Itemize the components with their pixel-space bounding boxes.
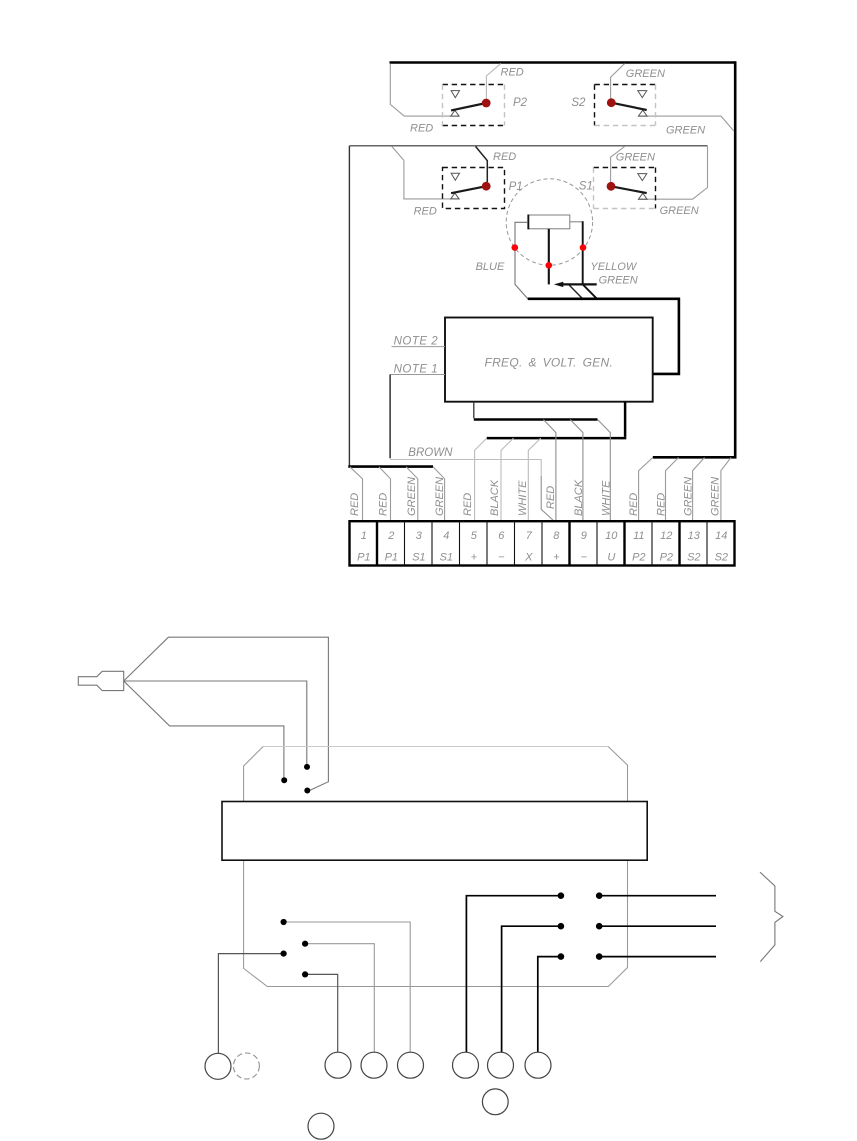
svg-text:GREEN: GREEN	[710, 477, 722, 516]
svg-text:S2: S2	[687, 551, 700, 563]
svg-text:S2: S2	[715, 551, 728, 563]
svg-text:BLUE: BLUE	[476, 261, 505, 273]
svg-text:P2: P2	[632, 551, 645, 563]
svg-text:−: −	[498, 551, 505, 563]
svg-text:6: 6	[498, 530, 505, 542]
svg-text:+: +	[471, 551, 478, 563]
svg-text:RED: RED	[462, 493, 474, 516]
svg-text:S1: S1	[412, 551, 425, 563]
svg-text:NOTE 2: NOTE 2	[394, 336, 439, 348]
svg-text:RED: RED	[501, 67, 524, 79]
svg-text:3: 3	[416, 530, 423, 542]
svg-text:1: 1	[361, 530, 367, 542]
svg-text:GREEN: GREEN	[666, 124, 705, 136]
svg-text:P1: P1	[357, 551, 370, 563]
svg-text:BLACK: BLACK	[489, 479, 501, 516]
svg-text:P2: P2	[660, 551, 673, 563]
svg-text:GREEN: GREEN	[660, 205, 699, 217]
svg-text:BROWN: BROWN	[408, 447, 453, 459]
svg-text:RED: RED	[349, 493, 361, 516]
svg-text:7: 7	[526, 530, 533, 542]
svg-text:GREEN: GREEN	[616, 151, 655, 163]
svg-text:U: U	[607, 551, 615, 563]
svg-text:X: X	[524, 551, 533, 563]
svg-text:RED: RED	[628, 493, 640, 516]
svg-text:12: 12	[660, 530, 672, 542]
svg-text:P2: P2	[513, 97, 528, 109]
svg-text:2: 2	[387, 530, 394, 542]
svg-text:GREEN: GREEN	[434, 477, 446, 516]
svg-text:P1: P1	[385, 551, 398, 563]
svg-text:+: +	[553, 551, 560, 563]
svg-text:BLACK: BLACK	[573, 479, 585, 516]
svg-text:9: 9	[581, 530, 587, 542]
svg-text:14: 14	[715, 530, 727, 542]
svg-text:S2: S2	[571, 97, 586, 109]
svg-text:RED: RED	[493, 151, 516, 163]
svg-text:13: 13	[688, 530, 701, 542]
svg-text:GREEN: GREEN	[626, 68, 665, 80]
svg-text:NOTE 1: NOTE 1	[394, 364, 439, 376]
svg-text:11: 11	[633, 530, 644, 542]
svg-text:RED: RED	[656, 493, 668, 516]
svg-text:−: −	[581, 551, 588, 563]
svg-text:S1: S1	[579, 181, 593, 193]
svg-text:P1: P1	[509, 181, 523, 193]
svg-text:GREEN: GREEN	[406, 477, 418, 516]
svg-text:RED: RED	[378, 493, 390, 516]
svg-text:WHITE: WHITE	[517, 480, 529, 516]
svg-text:GREEN: GREEN	[683, 477, 695, 516]
svg-text:10: 10	[605, 530, 618, 542]
svg-text:YELLOW: YELLOW	[590, 261, 637, 273]
svg-text:S1: S1	[440, 551, 453, 563]
svg-text:WHITE: WHITE	[601, 480, 613, 516]
svg-text:4: 4	[443, 530, 449, 542]
svg-text:FREQ. & VOLT. GEN.: FREQ. & VOLT. GEN.	[484, 356, 613, 370]
svg-text:RED: RED	[410, 123, 433, 135]
svg-text:RED: RED	[545, 486, 557, 509]
svg-text:GREEN: GREEN	[599, 275, 638, 287]
svg-text:8: 8	[553, 530, 560, 542]
svg-text:5: 5	[471, 530, 478, 542]
svg-text:RED: RED	[414, 205, 437, 217]
